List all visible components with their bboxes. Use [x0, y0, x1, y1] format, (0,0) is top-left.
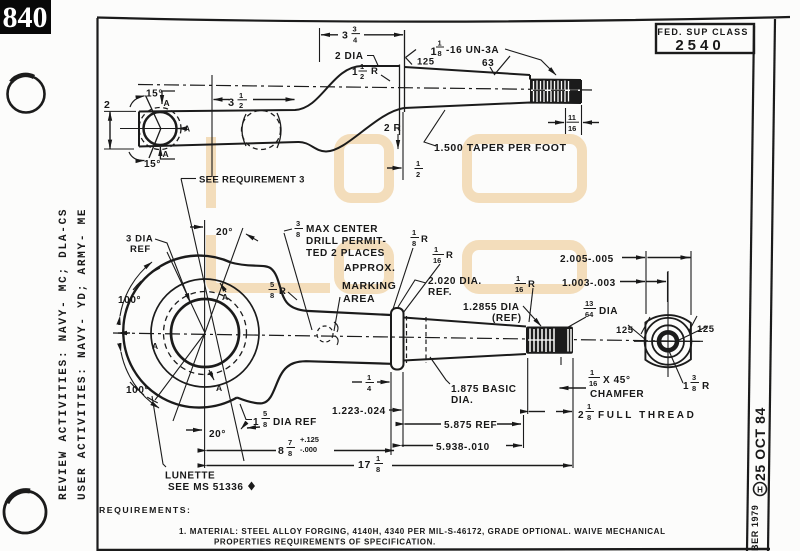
svg-text:8: 8 — [438, 49, 442, 58]
svg-text:20°: 20° — [216, 227, 233, 238]
svg-text:-.000: -.000 — [300, 445, 317, 454]
svg-text:R: R — [528, 279, 535, 290]
svg-text:CHAMFER: CHAMFER — [590, 389, 644, 400]
svg-text:5: 5 — [263, 409, 267, 418]
svg-text:8: 8 — [412, 239, 416, 248]
svg-text:3: 3 — [342, 30, 348, 42]
svg-text:R: R — [279, 286, 286, 297]
svg-text:A: A — [222, 292, 228, 302]
svg-text:DIA REF: DIA REF — [273, 417, 317, 428]
svg-text:2: 2 — [416, 170, 420, 179]
svg-text:17: 17 — [358, 459, 371, 471]
svg-text:840: 840 — [3, 1, 48, 34]
svg-text:DIA: DIA — [599, 306, 618, 317]
svg-text:1.223-.024: 1.223-.024 — [332, 406, 386, 417]
svg-text:5.875 REF: 5.875 REF — [444, 420, 497, 431]
svg-text:2: 2 — [104, 99, 110, 111]
svg-text:3: 3 — [692, 373, 696, 382]
svg-text:2 DIA: 2 DIA — [335, 51, 364, 62]
svg-text:8: 8 — [270, 291, 274, 300]
svg-text:REF.: REF. — [428, 287, 452, 298]
svg-text:1.500 TAPER PER FOOT: 1.500 TAPER PER FOOT — [434, 142, 567, 154]
svg-text:MARKING: MARKING — [342, 280, 396, 292]
svg-text:BER 1979: BER 1979 — [750, 505, 760, 551]
svg-text:8: 8 — [587, 413, 591, 422]
svg-text:1.2855 DIA: 1.2855 DIA — [463, 302, 520, 313]
svg-text:+.125: +.125 — [300, 435, 319, 444]
svg-text:2540: 2540 — [675, 37, 724, 54]
svg-text:1.875 BASIC: 1.875 BASIC — [451, 384, 517, 395]
svg-text:AREA: AREA — [343, 293, 375, 305]
svg-text:R: R — [371, 66, 378, 77]
svg-text:R: R — [446, 250, 453, 261]
svg-text:64: 64 — [585, 310, 594, 319]
svg-text:LUNETTE: LUNETTE — [165, 471, 215, 482]
svg-text:8: 8 — [278, 445, 284, 457]
svg-text:1: 1 — [416, 159, 420, 168]
svg-text:REF: REF — [130, 244, 151, 255]
svg-text:FED. SUP CLASS: FED. SUP CLASS — [657, 27, 748, 37]
svg-text:REVIEW ACTIVITIES: NAVY- MC; D: REVIEW ACTIVITIES: NAVY- MC; DLA-CS — [58, 208, 70, 500]
svg-text:2.020 DIA.: 2.020 DIA. — [428, 276, 482, 287]
svg-text:20°: 20° — [209, 429, 226, 440]
svg-text:2: 2 — [360, 72, 364, 81]
svg-text:REQUIREMENTS:: REQUIREMENTS: — [99, 505, 191, 515]
svg-text:63: 63 — [482, 58, 494, 69]
svg-text:3 DIA: 3 DIA — [126, 234, 153, 245]
svg-text:DIA.: DIA. — [451, 395, 473, 406]
svg-text:A: A — [216, 383, 222, 393]
svg-text:2: 2 — [239, 101, 243, 110]
svg-text:100°: 100° — [118, 295, 141, 306]
svg-text:5.938-.010: 5.938-.010 — [436, 442, 490, 453]
svg-text:SEE REQUIREMENT 3: SEE REQUIREMENT 3 — [199, 175, 305, 186]
svg-text:FULL THREAD: FULL THREAD — [598, 410, 696, 421]
svg-text:1: 1 — [352, 67, 358, 78]
svg-text:1: 1 — [438, 39, 442, 48]
svg-text:13: 13 — [585, 299, 593, 308]
svg-text:16: 16 — [589, 379, 597, 388]
svg-text:1: 1 — [253, 417, 259, 428]
svg-text:-16 UN-3A: -16 UN-3A — [446, 45, 499, 56]
svg-text:MAX CENTER: MAX CENTER — [306, 224, 378, 235]
svg-text:5: 5 — [270, 280, 274, 289]
svg-text:8: 8 — [692, 384, 696, 393]
svg-text:3: 3 — [228, 97, 235, 109]
svg-text:A: A — [164, 98, 170, 108]
svg-text:16: 16 — [433, 256, 441, 265]
svg-text:15°: 15° — [146, 89, 163, 100]
svg-text:2: 2 — [578, 410, 584, 421]
svg-text:1: 1 — [360, 62, 364, 71]
svg-text:R: R — [421, 234, 428, 245]
svg-text:USER ACTIVITIES: NAVY- YD; ARM: USER ACTIVITIES: NAVY- YD; ARMY- ME — [77, 208, 89, 500]
svg-text:H: H — [757, 486, 763, 495]
svg-text:APPROX.: APPROX. — [344, 262, 395, 274]
svg-text:8: 8 — [296, 230, 300, 239]
svg-text:16: 16 — [568, 124, 576, 133]
svg-text:8: 8 — [376, 465, 380, 474]
svg-text:1: 1 — [367, 373, 371, 382]
svg-text:1: 1 — [434, 245, 438, 254]
svg-text:A: A — [163, 149, 169, 159]
svg-text:125: 125 — [417, 57, 435, 68]
svg-text:3: 3 — [296, 219, 300, 228]
svg-text:15°: 15° — [144, 159, 161, 170]
svg-text:A: A — [152, 341, 158, 351]
svg-text:1: 1 — [683, 381, 689, 392]
svg-text:100°: 100° — [126, 385, 149, 396]
svg-text:DRILL PERMIT-: DRILL PERMIT- — [306, 236, 386, 247]
svg-text:1: 1 — [412, 228, 416, 237]
svg-text:25 OCT 84: 25 OCT 84 — [752, 407, 768, 481]
svg-text:1: 1 — [376, 454, 380, 463]
svg-text:16: 16 — [515, 285, 523, 294]
svg-text:TED 2 PLACES: TED 2 PLACES — [306, 248, 385, 259]
svg-text:1: 1 — [587, 402, 591, 411]
svg-text:8: 8 — [263, 420, 267, 429]
svg-text:1: 1 — [516, 274, 520, 283]
svg-text:X 45°: X 45° — [603, 375, 631, 386]
svg-text:1.003-.003: 1.003-.003 — [562, 278, 616, 289]
svg-text:3: 3 — [353, 25, 357, 34]
svg-text:SEE MS 51336: SEE MS 51336 — [168, 482, 244, 493]
svg-text:2 R: 2 R — [384, 123, 402, 134]
svg-text:1: 1 — [590, 368, 594, 377]
svg-text:R: R — [702, 381, 710, 392]
svg-text:11: 11 — [568, 113, 576, 122]
svg-text:2.005-.005: 2.005-.005 — [560, 254, 614, 265]
svg-text:125: 125 — [616, 325, 634, 336]
svg-text:A: A — [184, 124, 190, 134]
svg-text:1: 1 — [239, 91, 243, 100]
svg-text:1. MATERIAL: STEEL ALLOY FOR: 1. MATERIAL: STEEL ALLOY FORGING, 4140H,… — [179, 527, 666, 536]
svg-text:8: 8 — [288, 449, 292, 458]
svg-text:PROPERTIES REQUIREMENTS OF SPE: PROPERTIES REQUIREMENTS OF SPECIFICATION… — [214, 538, 436, 547]
svg-text:(REF): (REF) — [492, 313, 522, 324]
svg-text:7: 7 — [288, 438, 292, 447]
